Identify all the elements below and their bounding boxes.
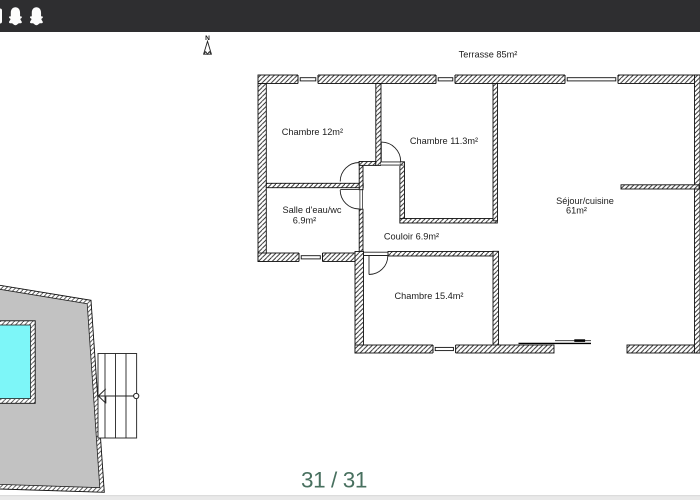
svg-text:6.9m²: 6.9m² — [293, 215, 317, 225]
svg-text:Salle d'eau/wc: Salle d'eau/wc — [283, 205, 342, 215]
svg-text:Couloir 6.9m²: Couloir 6.9m² — [384, 232, 439, 242]
svg-text:31 / 31: 31 / 31 — [301, 467, 367, 492]
svg-text:Chambre 11.3m²: Chambre 11.3m² — [410, 136, 478, 146]
svg-text:61m²: 61m² — [566, 206, 587, 216]
svg-text:Terrasse 85m²: Terrasse 85m² — [459, 49, 518, 59]
svg-text:Chambre 12m²: Chambre 12m² — [282, 127, 343, 137]
svg-text:Chambre 15.4m²: Chambre 15.4m² — [395, 291, 464, 301]
